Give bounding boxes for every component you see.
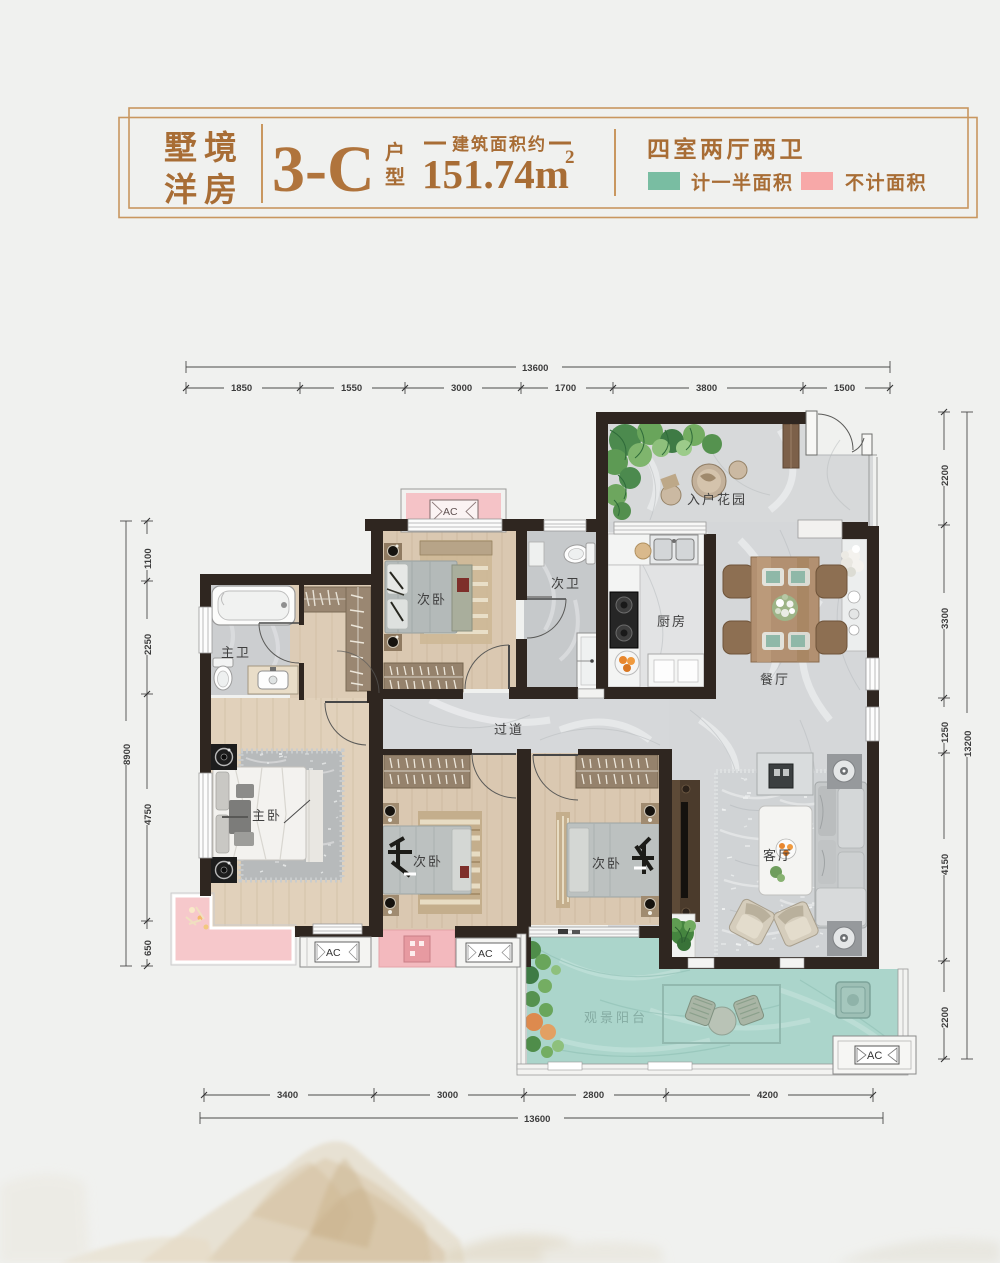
svg-text:1850: 1850 (231, 383, 252, 394)
svg-text:主卫: 主卫 (221, 645, 251, 660)
svg-text:餐厅: 餐厅 (760, 672, 790, 687)
svg-text:3000: 3000 (437, 1090, 458, 1101)
svg-text:4200: 4200 (757, 1090, 778, 1101)
svg-text:主卧: 主卧 (252, 808, 282, 823)
svg-text:3000: 3000 (451, 383, 472, 394)
svg-text:次卧: 次卧 (592, 856, 622, 871)
svg-text:客厅: 客厅 (763, 848, 793, 863)
svg-text:次卧: 次卧 (417, 592, 447, 607)
svg-text:2800: 2800 (583, 1090, 604, 1101)
svg-text:3800: 3800 (696, 383, 717, 394)
svg-text:计一半面积: 计一半面积 (691, 171, 794, 194)
svg-text:2250: 2250 (143, 634, 154, 655)
svg-text:墅境: 墅境 (164, 129, 244, 167)
svg-text:观景阳台: 观景阳台 (584, 1010, 648, 1025)
svg-text:2: 2 (565, 147, 575, 168)
svg-text:AC: AC (443, 506, 458, 518)
svg-text:13200: 13200 (963, 731, 974, 757)
svg-text:AC: AC (326, 947, 341, 959)
svg-text:入户花园: 入户花园 (687, 492, 747, 507)
svg-text:1500: 1500 (834, 383, 855, 394)
svg-text:型: 型 (385, 166, 405, 189)
svg-text:650: 650 (143, 940, 154, 956)
svg-text:4150: 4150 (940, 854, 951, 875)
svg-text:AC: AC (867, 1050, 882, 1062)
svg-text:4750: 4750 (143, 804, 154, 825)
svg-text:1250: 1250 (940, 722, 951, 743)
svg-text:次卫: 次卫 (551, 576, 581, 591)
svg-text:3300: 3300 (940, 608, 951, 629)
svg-text:不计面积: 不计面积 (845, 172, 927, 194)
svg-text:1550: 1550 (341, 383, 362, 394)
svg-text:次卧: 次卧 (413, 854, 443, 869)
svg-text:户: 户 (385, 140, 405, 164)
svg-text:厨房: 厨房 (657, 614, 687, 629)
svg-text:8900: 8900 (122, 744, 133, 765)
svg-text:151.74m: 151.74m (422, 151, 569, 197)
svg-text:四室两厅两卫: 四室两厅两卫 (647, 136, 806, 162)
svg-text:2200: 2200 (940, 465, 951, 486)
svg-text:1700: 1700 (555, 383, 576, 394)
svg-text:AC: AC (478, 948, 493, 960)
svg-text:2200: 2200 (940, 1007, 951, 1028)
svg-text:洋房: 洋房 (164, 172, 244, 209)
svg-text:3400: 3400 (277, 1090, 298, 1101)
svg-text:3-C: 3-C (272, 133, 375, 206)
svg-text:13600: 13600 (524, 1114, 550, 1125)
svg-text:过道: 过道 (494, 722, 524, 737)
svg-text:1100: 1100 (143, 548, 154, 569)
svg-text:13600: 13600 (522, 363, 548, 374)
